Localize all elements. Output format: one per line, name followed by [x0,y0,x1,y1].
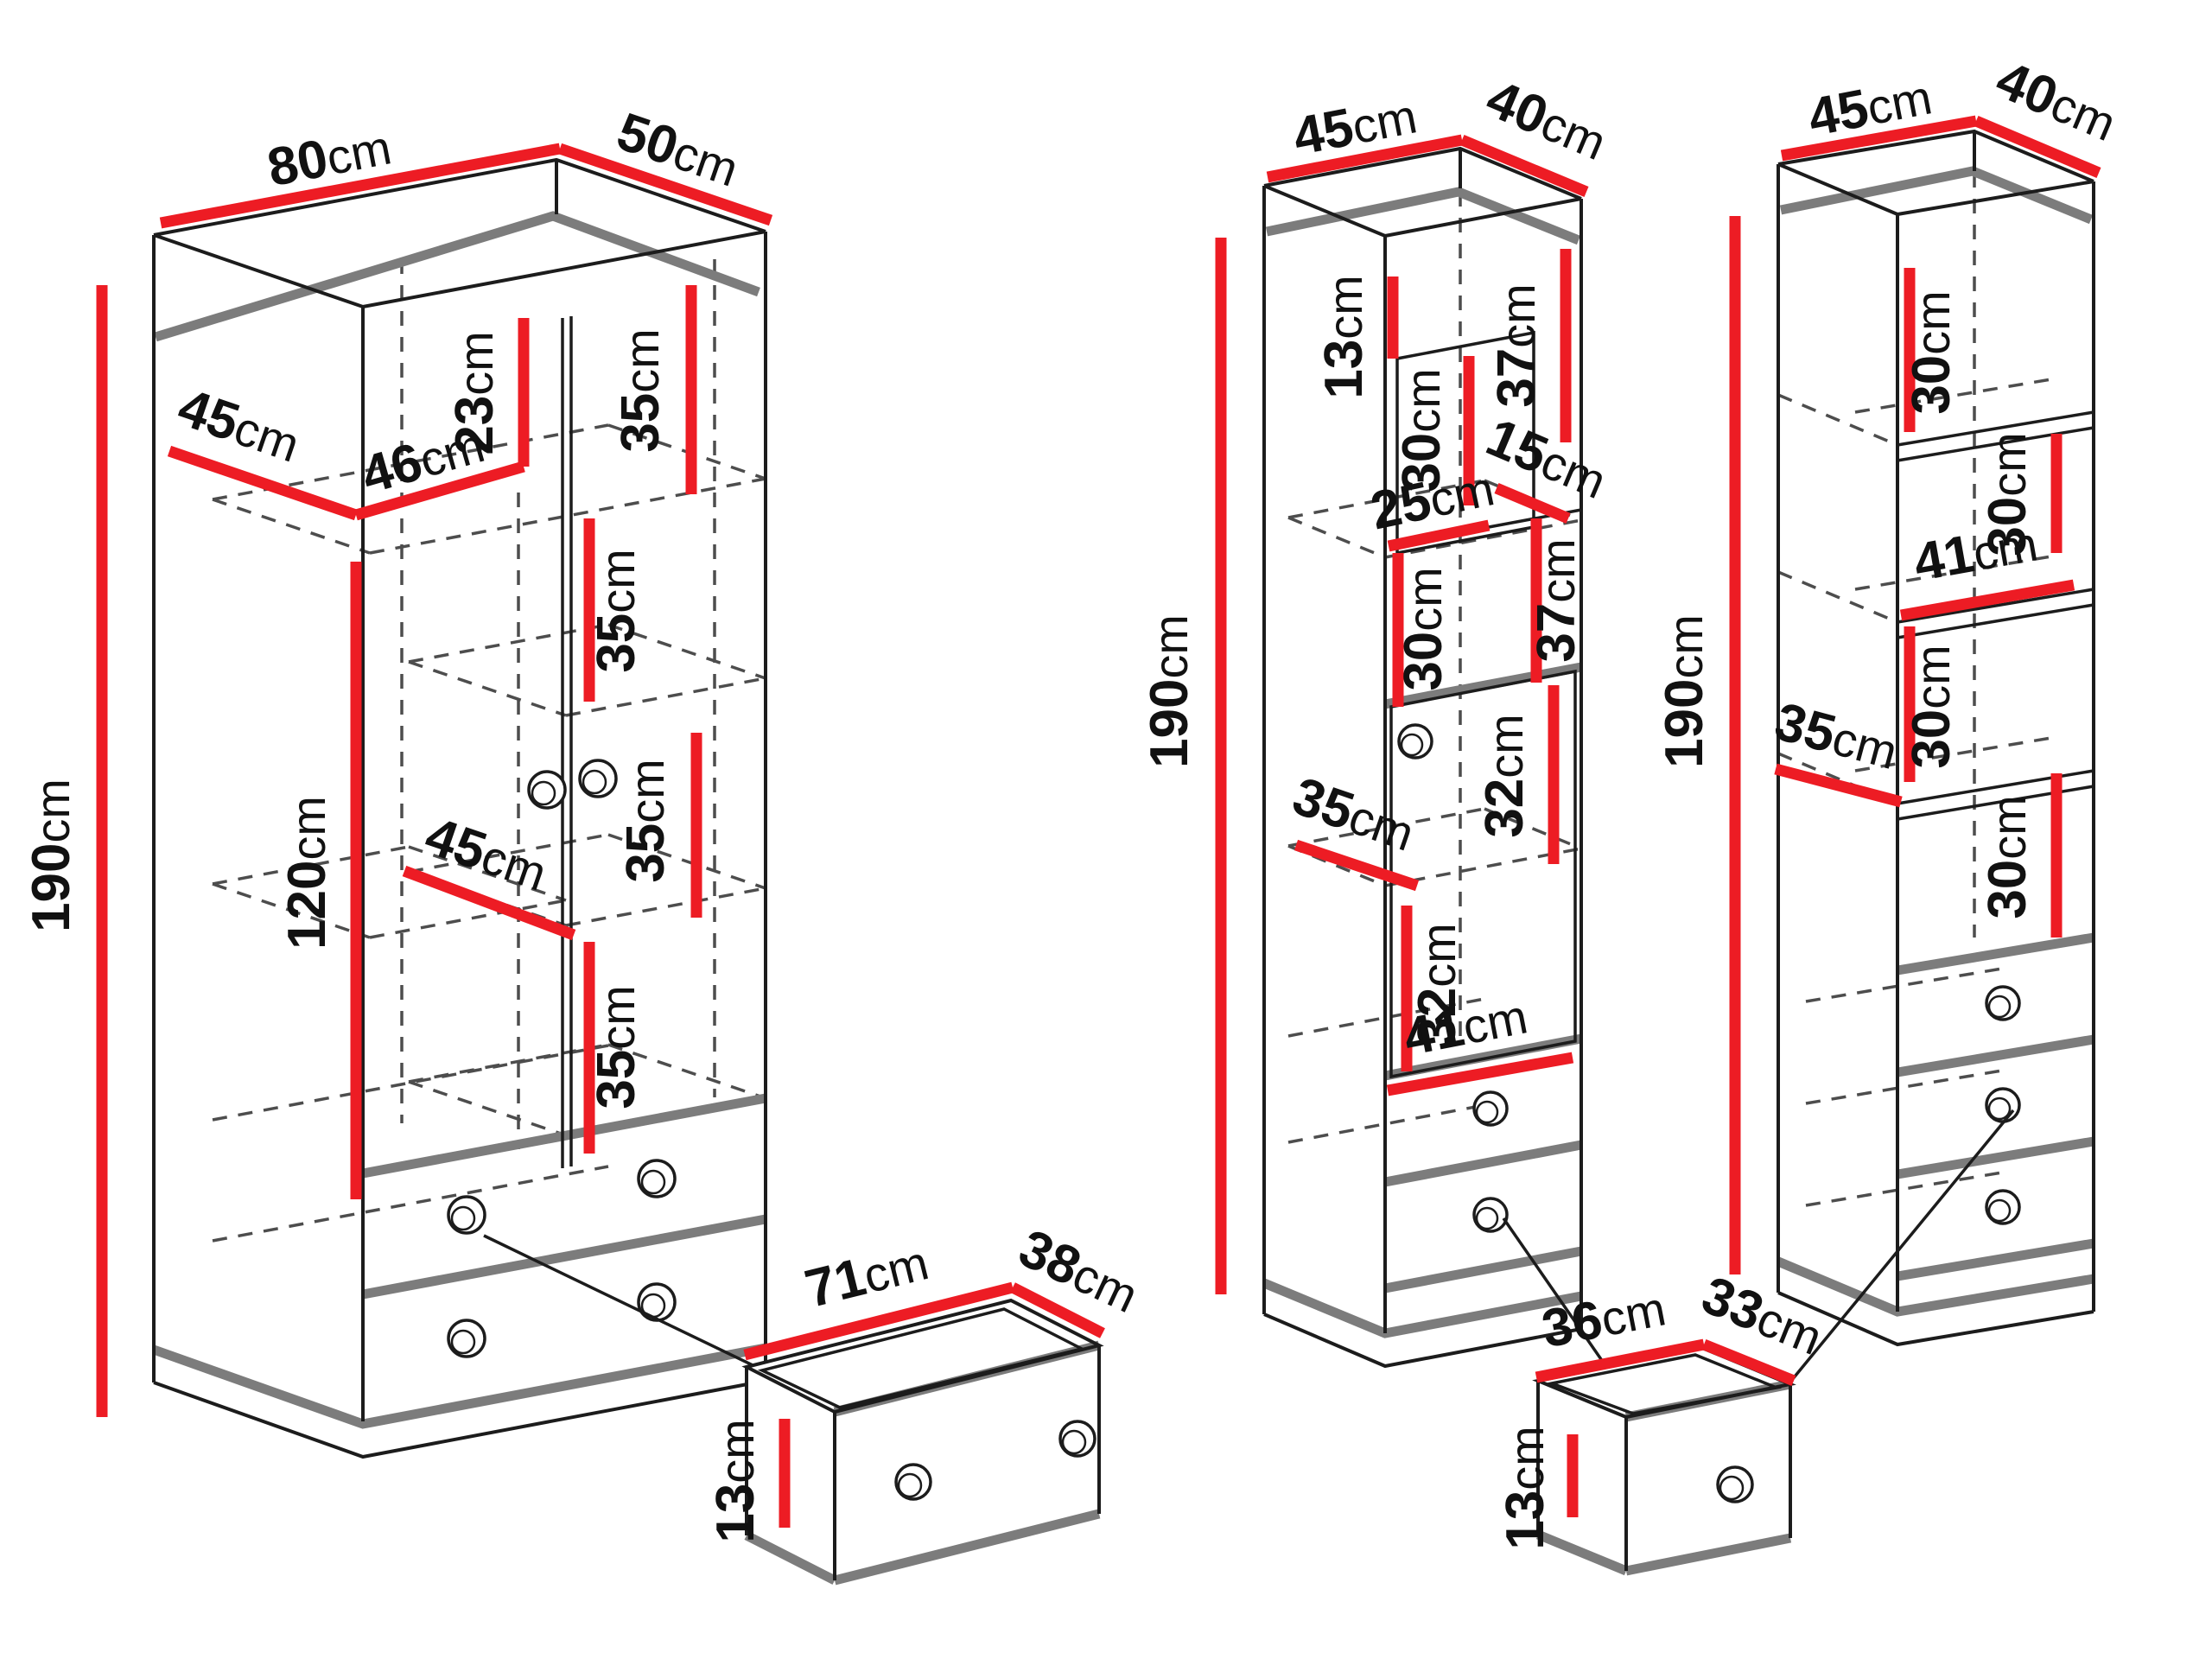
wardrobe-top-gap-label: 23cm [445,331,505,454]
drawer-narrow-drawing: 36cm 33cm 13cm [1496,1265,1831,1571]
drawer-knob [448,1197,485,1233]
furniture-dimension-diagram: 80cm 50cm 190cm 45cm 46cm 23cm 35cm 35cm… [0,0,2212,1659]
cabinet-a-right-gap2-label: 37cm [1527,538,1586,662]
cabinet-a-top-gap-label: 13cm [1314,275,1374,398]
wardrobe-gap2-label: 35cm [587,549,646,672]
cabinet-a-height-label: 190cm [1140,614,1199,768]
cabinet-b-gap3-label: 30cm [1902,645,1961,768]
drawer-knob [448,1320,485,1357]
cabinet-b-gap4-label: 30cm [1978,795,2037,918]
wardrobe-drawing: 80cm 50cm 190cm 45cm 46cm 23cm 35cm 35cm… [22,102,771,1457]
cabinet-a-lower-niche-height-label: 30cm [1394,567,1453,690]
cabinet-b-gap1-label: 30cm [1902,290,1961,414]
wardrobe-gap1-label: 35cm [611,328,671,452]
drawer-knob [639,1284,675,1320]
door-knob [529,772,565,808]
drawer-wide-drawing: 71cm 38cm 13cm [706,1218,1147,1580]
cabinet-a-right-gap1-label: 37cm [1487,283,1547,407]
wardrobe-gap4-label: 35cm [587,985,646,1109]
tall-cabinet-left-drawing: 45cm 40cm 190cm 13cm 30cm 37cm 15cm 25cm… [1140,68,1615,1366]
wardrobe-gap3-label: 35cm [616,759,676,882]
cabinet-b-height-label: 190cm [1655,614,1714,768]
drawer-wide-height-label: 13cm [706,1419,766,1542]
diagram-canvas: 80cm 50cm 190cm 45cm 46cm 23cm 35cm 35cm… [0,0,2212,1659]
drawer-wide-width-label: 71cm [799,1231,934,1319]
drawer-narrow-knobs [1718,1467,1752,1502]
wardrobe-hanging-height-label: 120cm [277,796,337,950]
cabinet-a-door-gap-right-label: 32cm [1475,714,1535,837]
tall-cabinet-right-drawing: 45cm 40cm 190cm 30cm 30cm 41cm 30cm 35cm… [1655,49,2125,1344]
wardrobe-height-label: 190cm [22,779,81,932]
drawer-knob [639,1160,675,1197]
door-knob [580,760,616,797]
drawer-narrow-height-label: 13cm [1496,1426,1555,1549]
